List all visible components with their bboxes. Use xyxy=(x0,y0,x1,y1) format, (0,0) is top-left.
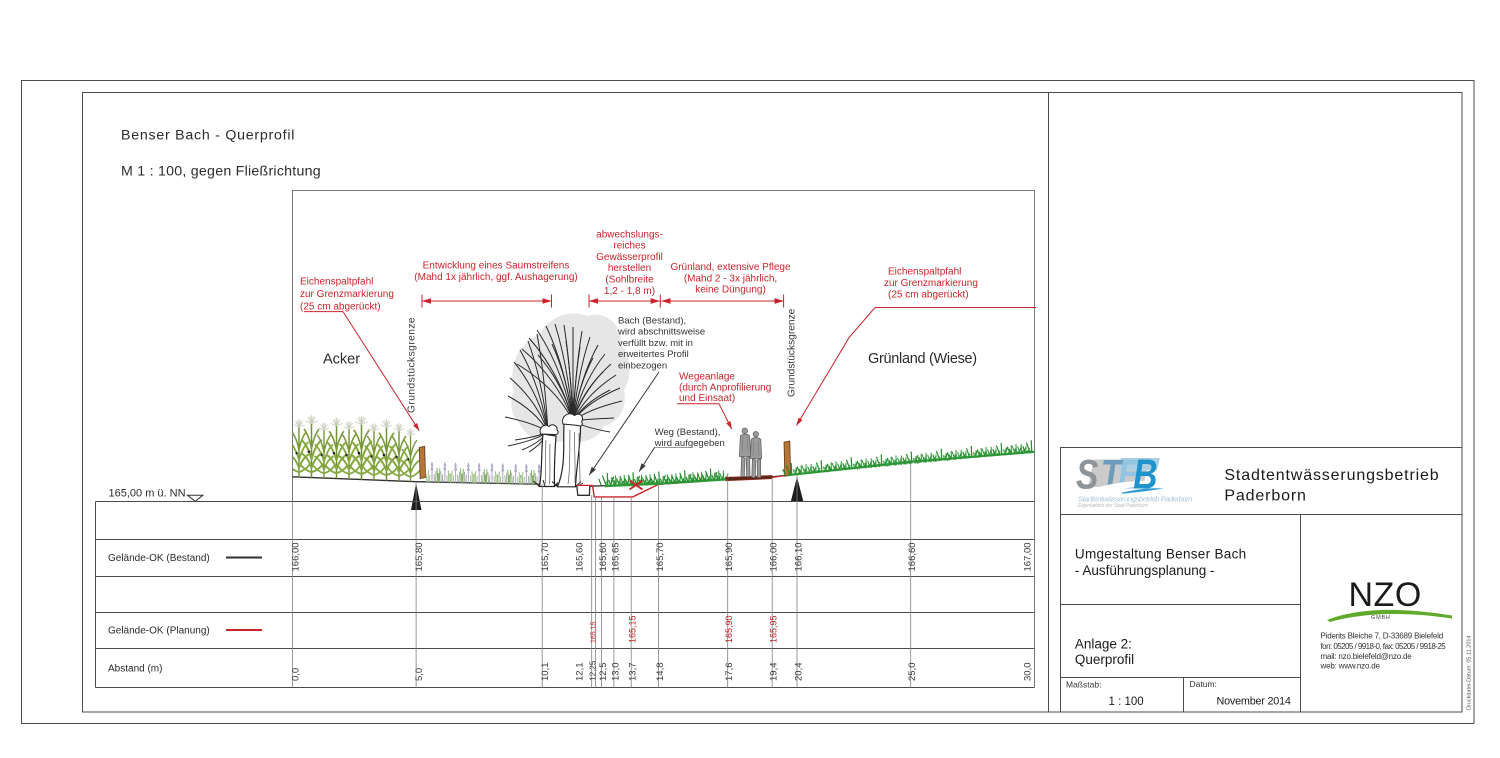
svg-text:12,1: 12,1 xyxy=(575,663,586,682)
svg-text:165,70: 165,70 xyxy=(540,542,551,571)
svg-text:Grundstücksgrenze: Grundstücksgrenze xyxy=(787,308,798,397)
svg-text:165,80: 165,80 xyxy=(414,542,425,571)
svg-text:erweitertes Profil: erweitertes Profil xyxy=(618,349,689,360)
svg-text:herstellen: herstellen xyxy=(608,263,651,274)
svg-text:19,4: 19,4 xyxy=(769,663,780,682)
svg-text:zur Grenzmarkierung: zur Grenzmarkierung xyxy=(884,278,978,289)
svg-text:20,4: 20,4 xyxy=(794,663,805,682)
svg-text:166,10: 166,10 xyxy=(794,542,805,571)
svg-text:Grünland (Wiese): Grünland (Wiese) xyxy=(868,351,977,367)
svg-text:fon: 05205 / 9918-0, fax: 0520: fon: 05205 / 9918-0, fax: 05205 / 9918-2… xyxy=(1321,642,1447,651)
svg-text:Grundstücksgrenze: Grundstücksgrenze xyxy=(407,317,418,413)
svg-text:abwechslungs-: abwechslungs- xyxy=(596,229,663,240)
svg-text:Piderits Bleiche 7, D-33689 Bi: Piderits Bleiche 7, D-33689 Bielefeld xyxy=(1321,632,1443,641)
svg-text:Grünland, extensive Pflege: Grünland, extensive Pflege xyxy=(670,262,791,273)
svg-text:165,60: 165,60 xyxy=(598,542,609,571)
svg-text:13,0: 13,0 xyxy=(610,663,621,682)
svg-text:Gelände-OK (Planung): Gelände-OK (Planung) xyxy=(108,626,210,637)
svg-text:165,90: 165,90 xyxy=(724,542,735,571)
svg-text:14,8: 14,8 xyxy=(655,663,666,682)
svg-text:Abstand (m): Abstand (m) xyxy=(108,664,162,675)
svg-text:0,0: 0,0 xyxy=(290,668,301,681)
svg-text:Stadtentwässerungsbetrieb Pade: Stadtentwässerungsbetrieb Paderborn xyxy=(1078,494,1192,503)
svg-text:165,60: 165,60 xyxy=(575,542,586,571)
svg-text:165,00 m ü. NN: 165,00 m ü. NN xyxy=(109,487,186,499)
svg-text:reiches: reiches xyxy=(613,241,645,252)
svg-text:November 2014: November 2014 xyxy=(1217,696,1291,708)
svg-text:30,0: 30,0 xyxy=(1022,663,1033,682)
svg-text:Wegeanlage: Wegeanlage xyxy=(679,372,735,383)
svg-text:17,6: 17,6 xyxy=(724,663,735,682)
svg-text:165,95: 165,95 xyxy=(769,615,779,643)
svg-text:13,7: 13,7 xyxy=(628,663,639,682)
svg-text:(25 cm abgerückt): (25 cm abgerückt) xyxy=(300,302,381,313)
svg-text:25,0: 25,0 xyxy=(907,663,918,682)
svg-text:165,65: 165,65 xyxy=(610,542,621,571)
svg-text:Maßstab:: Maßstab: xyxy=(1066,679,1101,689)
svg-text:Umgestaltung Benser Bach: Umgestaltung Benser Bach xyxy=(1075,547,1247,562)
svg-text:Eichenspaltpfahl: Eichenspaltpfahl xyxy=(300,276,373,287)
svg-text:(durch Anprofilierung: (durch Anprofilierung xyxy=(679,382,771,393)
svg-text:M 1 : 100, gegen Fließrichtung: M 1 : 100, gegen Fließrichtung xyxy=(121,164,321,180)
svg-text:web: www.nzo.de: web: www.nzo.de xyxy=(1320,661,1381,670)
svg-text:165,90: 165,90 xyxy=(724,615,734,643)
svg-text:einbezogen: einbezogen xyxy=(618,360,667,371)
svg-text:verfüllt bzw. mit in: verfüllt bzw. mit in xyxy=(618,338,693,349)
svg-text:GMBH: GMBH xyxy=(1371,615,1391,621)
svg-text:NZO: NZO xyxy=(1349,576,1422,614)
svg-text:(Sohlbreite: (Sohlbreite xyxy=(605,275,654,286)
svg-text:12,5: 12,5 xyxy=(598,663,609,682)
svg-text:167,00: 167,00 xyxy=(1022,542,1033,571)
svg-text:wird abschnittsweise: wird abschnittsweise xyxy=(617,327,705,338)
svg-text:Stadtentwässerungsbetrieb: Stadtentwässerungsbetrieb xyxy=(1224,467,1439,484)
svg-text:- Ausführungsplanung -: - Ausführungsplanung - xyxy=(1075,563,1215,578)
svg-text:Eigenbetrieb der Stadt Paderbo: Eigenbetrieb der Stadt Paderborn xyxy=(1078,503,1148,509)
svg-text:165,15: 165,15 xyxy=(591,621,598,643)
svg-text:Anlage 2:: Anlage 2: xyxy=(1075,637,1132,652)
svg-text:Gelände-OK (Bestand): Gelände-OK (Bestand) xyxy=(108,553,210,564)
svg-text:Datum:: Datum: xyxy=(1190,679,1217,689)
svg-text:165,15: 165,15 xyxy=(628,615,638,643)
svg-text:Weg (Bestand),: Weg (Bestand), xyxy=(655,427,721,438)
svg-text:zur Grenzmarkierung: zur Grenzmarkierung xyxy=(300,289,394,300)
svg-text:Paderborn: Paderborn xyxy=(1224,488,1306,505)
svg-text:Eichenspaltpfahl: Eichenspaltpfahl xyxy=(888,267,961,278)
svg-text:Benser Bach - Querprofil: Benser Bach - Querprofil xyxy=(121,128,295,144)
svg-text:(25 cm abgerückt): (25 cm abgerückt) xyxy=(888,290,969,301)
svg-text:keine Düngung): keine Düngung) xyxy=(695,285,766,296)
svg-text:166,60: 166,60 xyxy=(907,542,918,571)
svg-text:Acker: Acker xyxy=(323,352,360,368)
svg-text:mail: nzo.bielefeld@nzo.de: mail: nzo.bielefeld@nzo.de xyxy=(1321,652,1413,661)
svg-text:Entwicklung eines Saumstreifen: Entwicklung eines Saumstreifens xyxy=(423,261,570,272)
svg-text:(Mahd 2 - 3x jährlich,: (Mahd 2 - 3x jährlich, xyxy=(684,273,777,284)
svg-text:(Mahd 1x jährlich, ggf. Aushag: (Mahd 1x jährlich, ggf. Aushagerung) xyxy=(414,272,577,283)
svg-text:1,2 - 1,8 m): 1,2 - 1,8 m) xyxy=(604,286,655,297)
svg-text:Bach (Bestand),: Bach (Bestand), xyxy=(618,316,686,327)
svg-text:166,00: 166,00 xyxy=(290,542,301,571)
svg-text:10,1: 10,1 xyxy=(540,663,551,682)
svg-text:1 : 100: 1 : 100 xyxy=(1109,696,1144,708)
svg-text:5,0: 5,0 xyxy=(414,668,425,681)
svg-text:und Einsaat): und Einsaat) xyxy=(679,393,735,404)
svg-text:166,00: 166,00 xyxy=(769,542,780,571)
svg-text:165,70: 165,70 xyxy=(655,542,666,571)
svg-text:Gewässerprofil: Gewässerprofil xyxy=(596,252,663,263)
svg-text:Druckdatei-Datum: 05.11.2014: Druckdatei-Datum: 05.11.2014 xyxy=(1467,636,1473,711)
svg-text:Querprofil: Querprofil xyxy=(1075,652,1134,667)
svg-text:12,25: 12,25 xyxy=(589,660,598,681)
